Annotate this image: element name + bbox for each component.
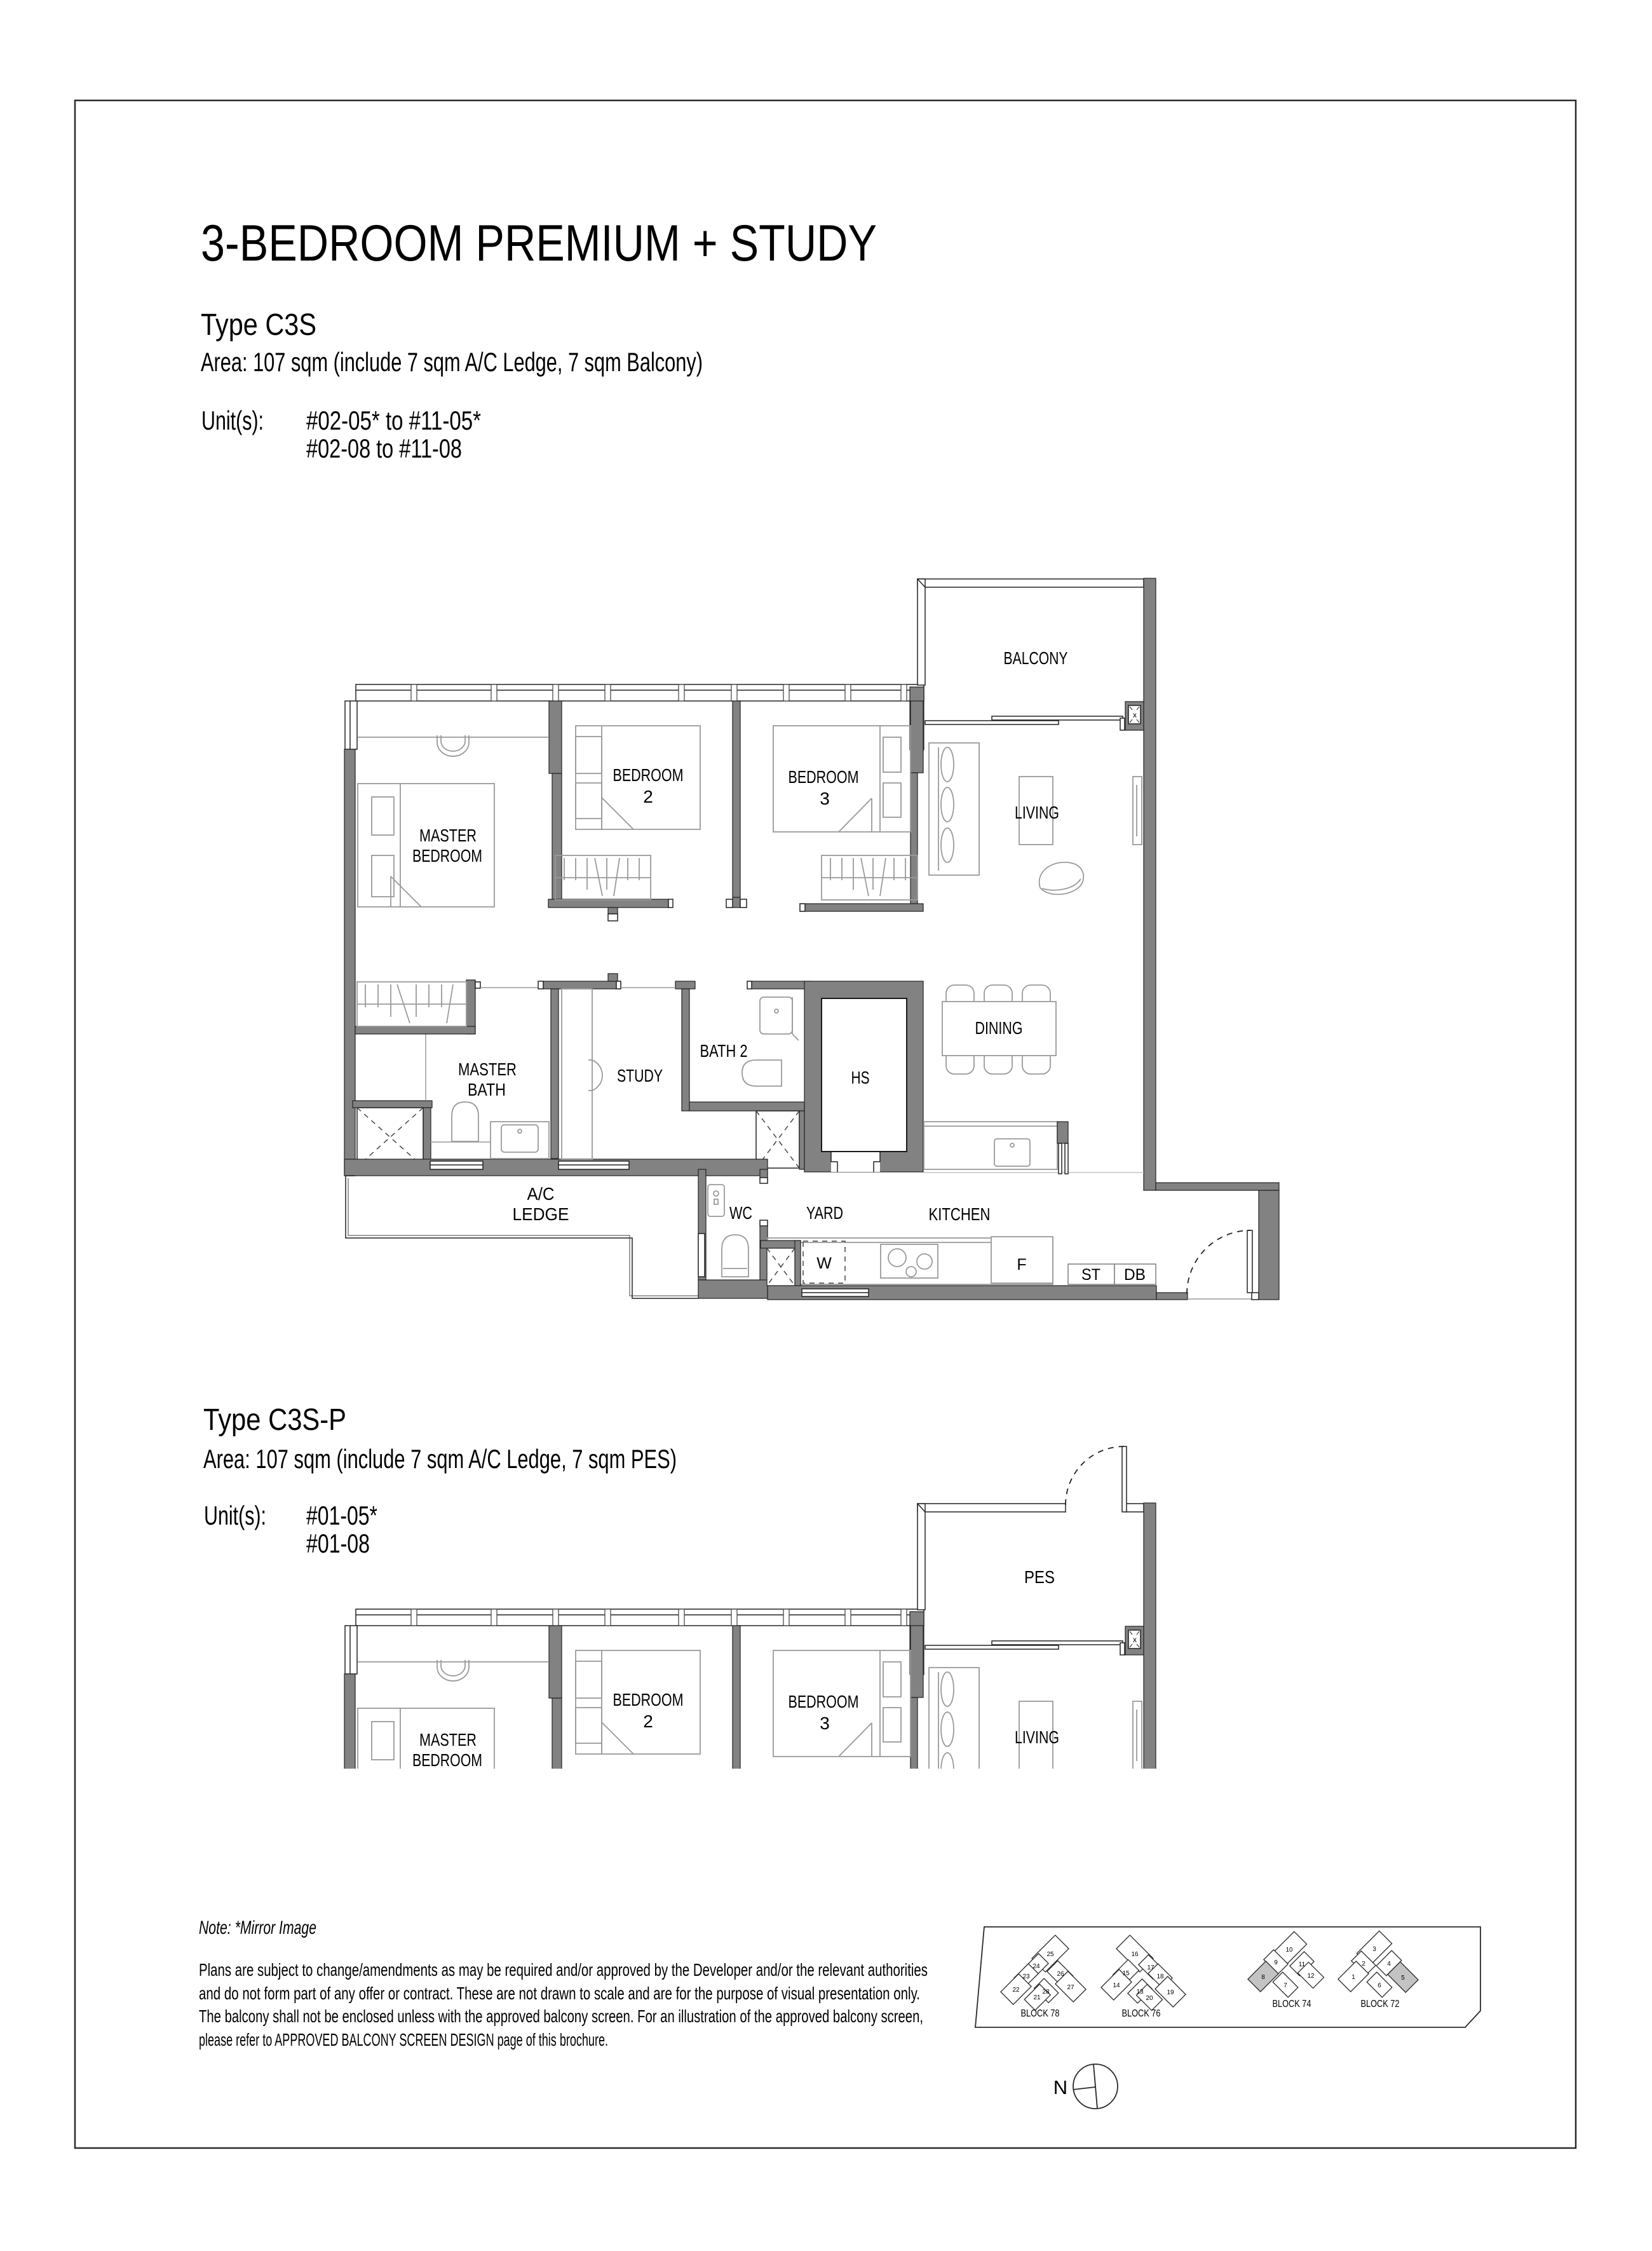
svg-text:DB: DB [1124,1266,1146,1284]
svg-text:Unit(s):: Unit(s): [201,405,264,435]
svg-text:1: 1 [1351,1974,1355,1981]
svg-text:#02-08 to #11-08: #02-08 to #11-08 [306,433,462,463]
svg-text:5: 5 [1401,1975,1405,1982]
svg-text:PES: PES [1024,1567,1055,1587]
svg-text:MASTER: MASTER [419,826,477,845]
svg-text:10: 10 [1285,1947,1293,1954]
svg-text:YARD: YARD [806,1203,843,1223]
svg-text:17: 17 [1147,1964,1154,1971]
svg-text:18: 18 [1156,1973,1164,1980]
svg-text:BEDROOM: BEDROOM [412,1750,482,1770]
svg-text:LEDGE: LEDGE [513,1204,569,1224]
svg-text:Area: 107 sqm (include 7 sqm A: Area: 107 sqm (include 7 sqm A/C Ledge, … [203,1444,677,1474]
svg-text:27: 27 [1067,1984,1074,1991]
svg-text:20: 20 [1146,1995,1153,2002]
svg-text:3: 3 [1372,1946,1376,1953]
svg-text:#01-08: #01-08 [306,1528,370,1558]
svg-text:KITCHEN: KITCHEN [929,1204,991,1224]
svg-text:14: 14 [1113,1982,1120,1989]
svg-text:LIVING: LIVING [1015,1727,1059,1747]
svg-text:12: 12 [1307,1973,1315,1980]
svg-text:WC: WC [729,1203,752,1223]
svg-text:A/C: A/C [527,1184,555,1204]
svg-text:BEDROOM: BEDROOM [412,846,482,866]
svg-text:HS: HS [851,1068,870,1087]
svg-text:26: 26 [1057,1971,1064,1978]
svg-text:22: 22 [1012,1987,1020,1994]
svg-text:#02-05* to #11-05*: #02-05* to #11-05* [306,405,481,435]
svg-text:The balcony shall not be enclo: The balcony shall not be enclosed unless… [199,2006,923,2026]
svg-text:2: 2 [1362,1961,1365,1968]
svg-text:LIVING: LIVING [1015,803,1059,822]
svg-text:BATH 2: BATH 2 [700,1041,748,1061]
svg-text:2: 2 [643,1711,653,1731]
svg-text:BEDROOM: BEDROOM [789,1692,859,1711]
svg-text:23: 23 [1022,1973,1030,1980]
svg-text:BATH: BATH [468,1080,506,1099]
svg-text:21: 21 [1033,1994,1041,2001]
svg-text:4: 4 [1387,1961,1391,1968]
svg-text:MASTER: MASTER [458,1059,517,1079]
svg-text:16: 16 [1131,1951,1139,1958]
svg-text:3: 3 [820,789,830,808]
svg-text:N: N [1053,2076,1067,2098]
svg-text:8: 8 [1261,1974,1265,1981]
svg-text:24: 24 [1032,1963,1040,1970]
svg-text:and do not form part of any of: and do not form part of any offer or con… [199,1983,920,2003]
svg-text:25: 25 [1046,1951,1054,1958]
svg-text:Type C3S-P: Type C3S-P [203,1403,346,1437]
svg-text:BALCONY: BALCONY [1004,648,1068,668]
svg-text:13: 13 [1136,1989,1144,1996]
svg-text:Plans are subject to change/am: Plans are subject to change/amendments a… [199,1960,928,1980]
svg-text:28: 28 [1042,1989,1050,1996]
svg-text:BEDROOM: BEDROOM [613,765,684,785]
svg-text:9: 9 [1274,1959,1278,1966]
svg-text:BLOCK 72: BLOCK 72 [1361,1999,1400,2010]
svg-text:MASTER: MASTER [419,1730,477,1750]
svg-text:11: 11 [1299,1961,1306,1968]
svg-text:19: 19 [1167,1989,1174,1996]
svg-text:BEDROOM: BEDROOM [613,1690,684,1710]
svg-text:BLOCK 78: BLOCK 78 [1021,2008,1060,2019]
svg-text:3: 3 [820,1713,830,1733]
svg-text:Area: 107 sqm (include 7 sqm A: Area: 107 sqm (include 7 sqm A/C Ledge, … [201,347,703,377]
svg-text:BEDROOM: BEDROOM [789,767,859,787]
svg-text:2: 2 [643,787,653,806]
svg-text:Note: *Mirror Image: Note: *Mirror Image [199,1917,316,1938]
svg-text:Type C3S: Type C3S [201,308,316,342]
svg-text:BLOCK 76: BLOCK 76 [1122,2008,1161,2019]
svg-text:W: W [816,1255,832,1272]
svg-text:15: 15 [1122,1970,1130,1977]
svg-text:F: F [1017,1256,1026,1274]
svg-text:DINING: DINING [975,1018,1023,1038]
svg-text:#01-05*: #01-05* [306,1500,377,1530]
svg-text:please refer to APPROVED BALCO: please refer to APPROVED BALCONY SCREEN … [199,2030,608,2050]
svg-text:6: 6 [1378,1982,1381,1989]
svg-text:7: 7 [1283,1982,1287,1989]
svg-text:BLOCK 74: BLOCK 74 [1273,1999,1311,2010]
svg-text:ST: ST [1081,1266,1100,1284]
svg-text:3-BEDROOM PREMIUM + STUDY: 3-BEDROOM PREMIUM + STUDY [201,215,877,272]
svg-text:Unit(s):: Unit(s): [204,1500,266,1530]
svg-text:STUDY: STUDY [617,1066,663,1085]
